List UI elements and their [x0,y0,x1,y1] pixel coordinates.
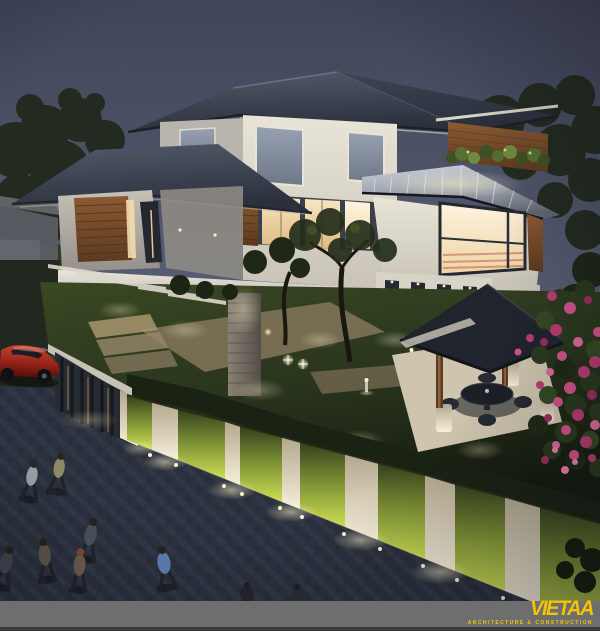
scene-canvas [0,0,600,631]
logo-tagline: ARCHITECTURE & CONSTRUCTION [468,621,593,626]
bedroom-wood-panel [527,214,543,272]
logo-wordmark: VIETAA [468,599,593,620]
upper-window-left [256,126,303,186]
banner-bottom-edge [0,627,600,631]
architectural-render-image: VIETAA ARCHITECTURE & CONSTRUCTION [0,0,600,631]
vietaa-logo: VIETAA ARCHITECTURE & CONSTRUCTION [468,599,593,626]
